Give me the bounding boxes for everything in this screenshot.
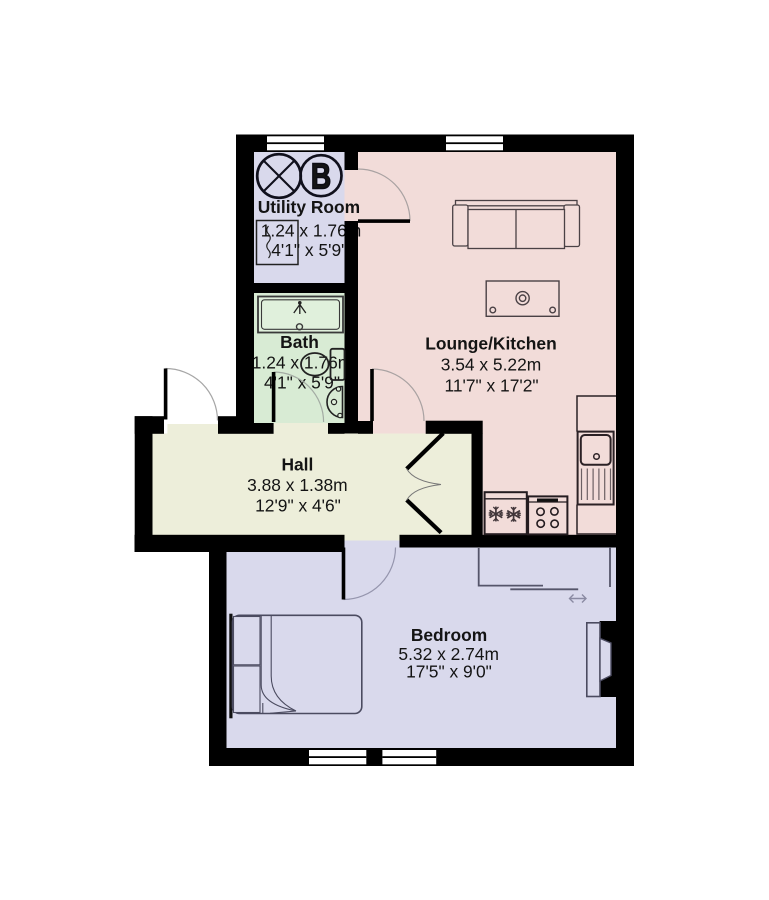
svg-text:12'9" x 4'6": 12'9" x 4'6"	[255, 496, 341, 516]
svg-text:11'7" x 17'2": 11'7" x 17'2"	[444, 376, 538, 396]
svg-text:Bath: Bath	[280, 332, 319, 352]
svg-text:Utility Room: Utility Room	[258, 197, 360, 217]
svg-text:3.88 x 1.38m: 3.88 x 1.38m	[247, 475, 348, 495]
svg-text:17'5" x 9'0": 17'5" x 9'0"	[406, 662, 492, 682]
svg-text:Hall: Hall	[281, 455, 313, 475]
svg-text:B: B	[311, 156, 331, 196]
svg-text:4'1" x 5'9": 4'1" x 5'9"	[271, 240, 347, 260]
svg-text:Lounge/Kitchen: Lounge/Kitchen	[425, 334, 556, 354]
svg-text:3.54 x 5.22m: 3.54 x 5.22m	[441, 355, 542, 375]
svg-text:Bedroom: Bedroom	[411, 625, 487, 645]
